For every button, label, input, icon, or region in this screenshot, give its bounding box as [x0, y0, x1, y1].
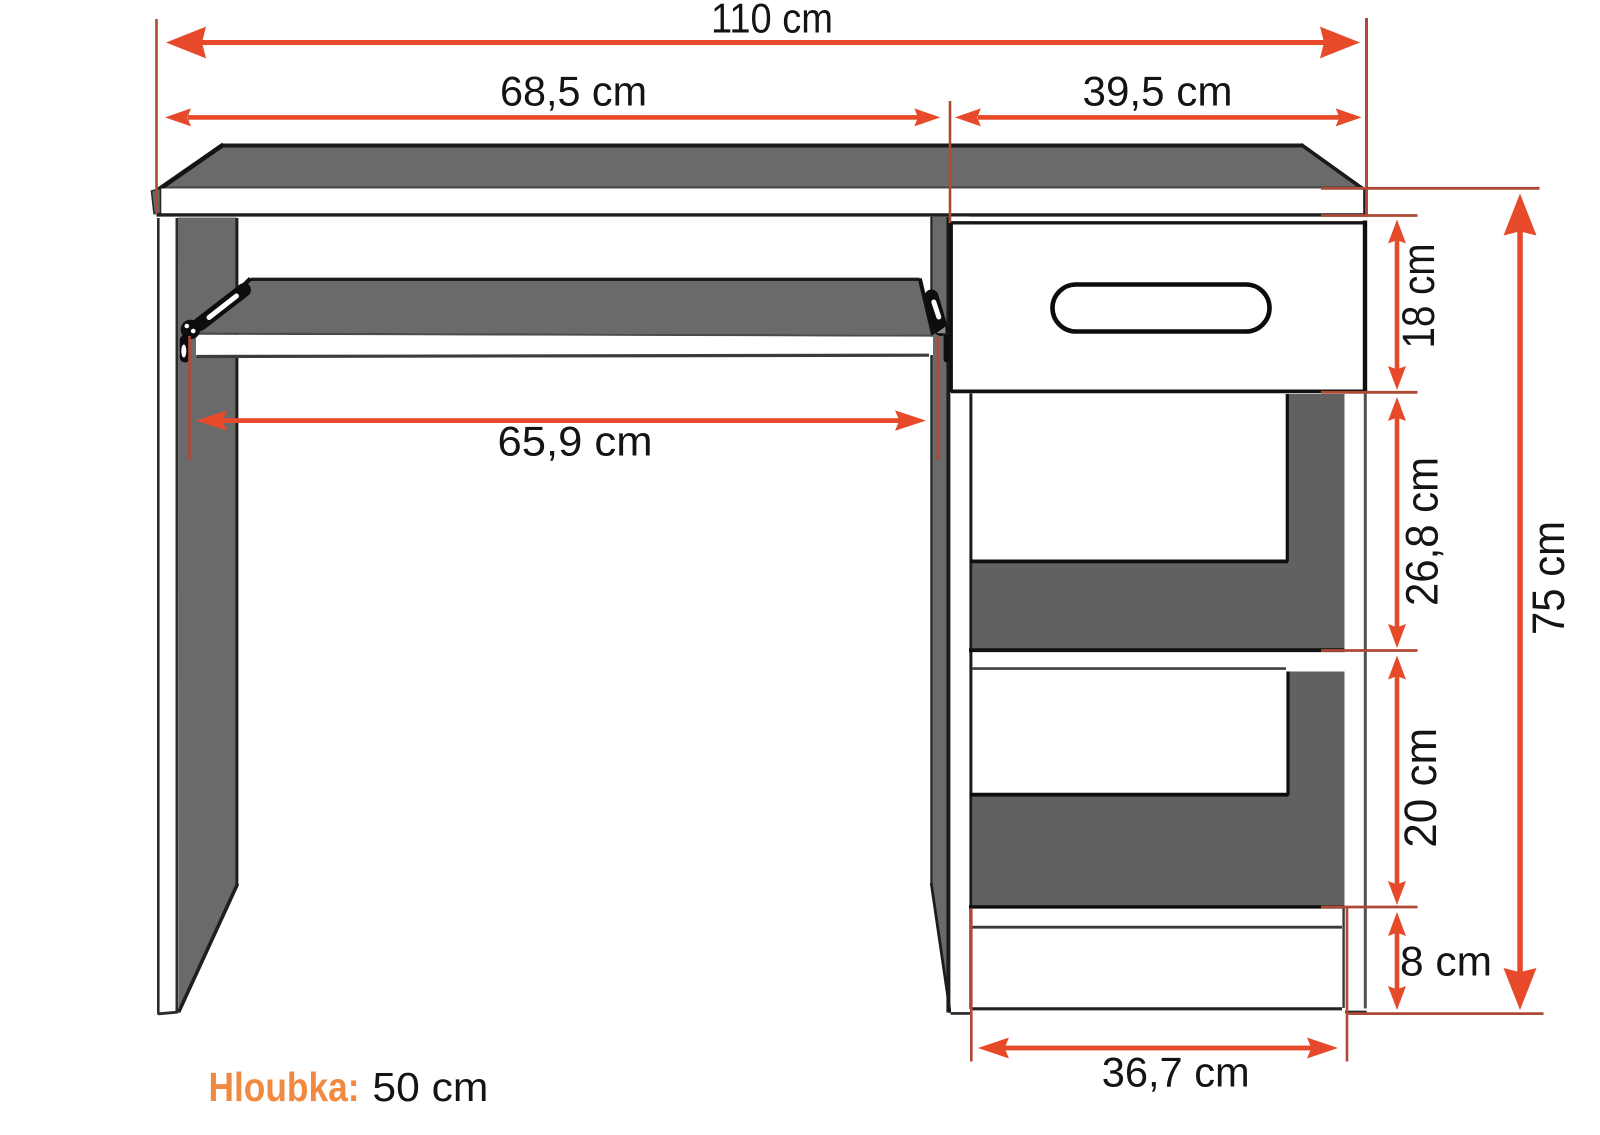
svg-text:18 cm: 18 cm — [1393, 244, 1444, 349]
svg-text:36,7 cm: 36,7 cm — [1102, 1049, 1250, 1096]
svg-text:110 cm: 110 cm — [711, 0, 833, 42]
svg-text:Hloubka:50 cm: Hloubka:50 cm — [209, 1064, 489, 1110]
svg-text:65,9 cm: 65,9 cm — [498, 418, 653, 465]
svg-text:68,5 cm: 68,5 cm — [500, 68, 647, 115]
svg-text:26,8 cm: 26,8 cm — [1397, 457, 1448, 606]
svg-text:75 cm: 75 cm — [1523, 521, 1574, 635]
svg-text:39,5 cm: 39,5 cm — [1083, 68, 1233, 115]
svg-text:8 cm: 8 cm — [1400, 937, 1492, 984]
svg-text:20 cm: 20 cm — [1395, 728, 1446, 848]
